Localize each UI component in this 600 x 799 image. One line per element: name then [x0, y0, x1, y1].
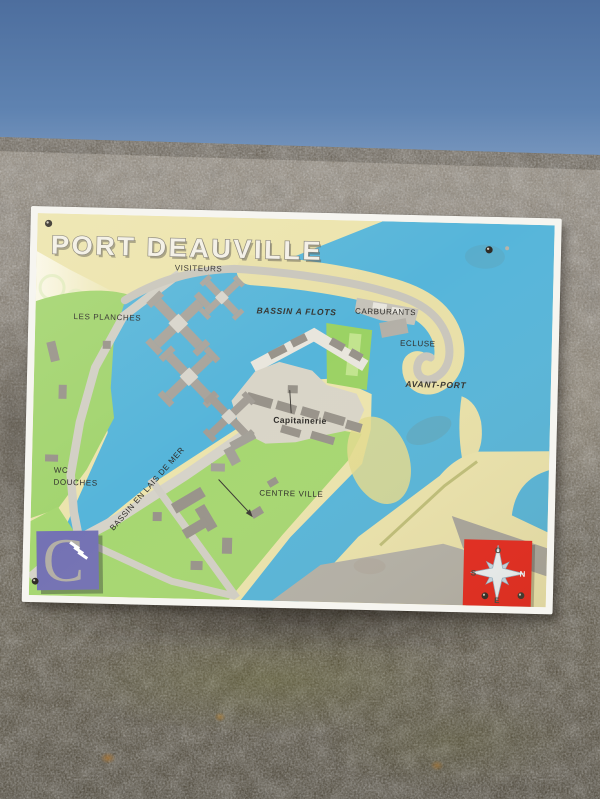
port-map: C O N S E VISITEURS LES PLANCHES	[29, 213, 555, 607]
panel-tint	[29, 213, 555, 607]
photo-of-harbor-map-sign: C O N S E VISITEURS LES PLANCHES	[0, 0, 600, 799]
port-map-sign: C O N S E VISITEURS LES PLANCHES	[22, 206, 562, 614]
